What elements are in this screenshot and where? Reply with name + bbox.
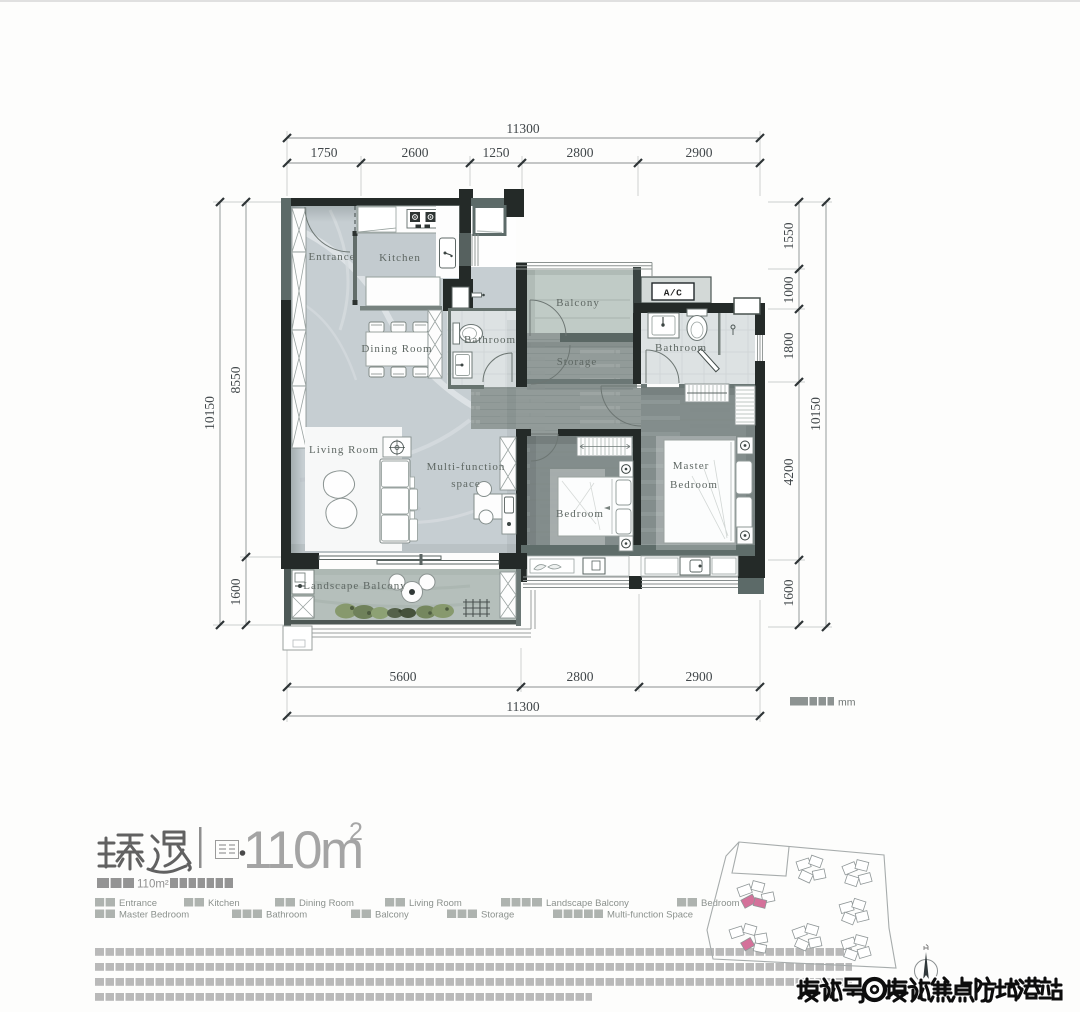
svg-text:2800: 2800 [567, 145, 594, 160]
svg-text:Bedroom: Bedroom [556, 508, 604, 520]
svg-text:Master: Master [673, 460, 710, 472]
svg-text:Multi-function: Multi-function [427, 461, 506, 473]
svg-text:Landscape Balcony: Landscape Balcony [303, 580, 406, 592]
svg-text:Landscape Balcony: Landscape Balcony [546, 898, 629, 909]
svg-text:1250: 1250 [483, 145, 510, 160]
svg-text:1600: 1600 [228, 578, 243, 605]
svg-text:5600: 5600 [390, 669, 417, 684]
svg-text:11300: 11300 [506, 699, 539, 714]
svg-text:2900: 2900 [686, 669, 713, 684]
svg-text:11300: 11300 [506, 121, 539, 136]
svg-text:1550: 1550 [781, 222, 796, 249]
svg-text:Storage: Storage [557, 356, 598, 368]
svg-text:A/C: A/C [664, 288, 683, 299]
svg-text:2800: 2800 [567, 669, 594, 684]
svg-text:Living Room: Living Room [309, 444, 379, 456]
svg-text:110m²: 110m² [137, 879, 169, 891]
svg-text:Storage: Storage [481, 910, 514, 921]
svg-text:Dining Room: Dining Room [299, 898, 354, 909]
svg-text:10150: 10150 [808, 397, 823, 431]
svg-text:Bedroom: Bedroom [670, 479, 718, 491]
svg-text:2600: 2600 [402, 145, 429, 160]
svg-text:1800: 1800 [781, 332, 796, 359]
svg-text:space: space [451, 478, 480, 490]
svg-text:1600: 1600 [781, 579, 796, 606]
svg-text:2900: 2900 [686, 145, 713, 160]
svg-text:Multi-function Space: Multi-function Space [607, 910, 693, 921]
svg-text:Balcony: Balcony [375, 910, 409, 921]
svg-text:Kitchen: Kitchen [379, 252, 421, 264]
svg-text:Balcony: Balcony [556, 297, 600, 309]
svg-text:Bathroom: Bathroom [266, 910, 307, 921]
svg-text:2: 2 [349, 818, 363, 846]
svg-text:110m: 110m [243, 821, 362, 880]
svg-text:4200: 4200 [781, 458, 796, 485]
svg-text:Master Bedroom: Master Bedroom [119, 910, 189, 921]
svg-text:Bathroom: Bathroom [655, 342, 707, 354]
svg-text:Dining Room: Dining Room [361, 343, 432, 355]
svg-text:Bathroom: Bathroom [464, 334, 516, 346]
svg-text:Living Room: Living Room [409, 898, 462, 909]
svg-text:1750: 1750 [311, 145, 338, 160]
svg-text:Bedroom: Bedroom [701, 898, 740, 909]
svg-text:Kitchen: Kitchen [208, 898, 240, 909]
svg-text:10150: 10150 [202, 396, 217, 430]
svg-text:mm: mm [838, 697, 856, 709]
svg-text:8550: 8550 [228, 366, 243, 393]
svg-text:Entrance: Entrance [308, 251, 355, 263]
svg-text:Entrance: Entrance [119, 898, 157, 909]
svg-text:1000: 1000 [781, 276, 796, 303]
